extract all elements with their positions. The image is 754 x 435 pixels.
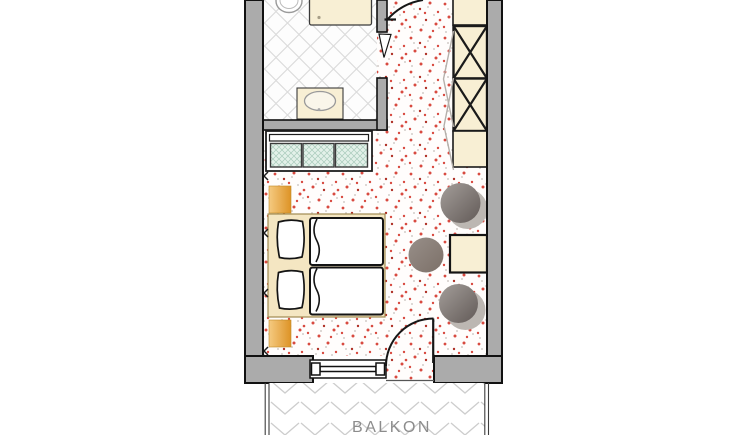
pillow [277, 220, 304, 259]
window-post [312, 363, 321, 375]
glass-sideboard [266, 131, 372, 171]
window-glazing [320, 367, 376, 372]
balcony: BALKON [265, 383, 488, 435]
shower-drain-icon [317, 16, 320, 19]
nightstand [269, 186, 291, 213]
sink-icon [305, 92, 336, 111]
pillow [277, 271, 304, 310]
shower-tray [310, 0, 372, 25]
glass-panel [271, 144, 302, 168]
bathroom-right-wall-lower [377, 78, 387, 130]
glass-panel [336, 144, 368, 168]
mattress-duvet [310, 268, 383, 315]
bathroom-bottom-wall [263, 120, 387, 130]
balcony-label: BALKON [352, 419, 432, 435]
chair [409, 238, 444, 273]
bottom-wall-right-block [434, 356, 502, 383]
window [310, 360, 386, 378]
window-post [376, 363, 385, 375]
chair [439, 284, 478, 323]
left-wall [245, 0, 263, 383]
sink-drain-icon [318, 108, 321, 111]
floorplan-canvas: BALKON [0, 0, 754, 435]
wardrobe-top-shelf [453, 0, 487, 25]
bottom-wall-left-block [245, 356, 313, 383]
mattress-duvet [310, 218, 383, 265]
side-table [450, 235, 487, 273]
right-wall [487, 0, 502, 383]
balcony-door-threshold-floor [386, 356, 434, 381]
bathroom-right-wall-upper [377, 0, 387, 32]
wardrobe-bottom-shelf [453, 131, 487, 167]
chair [441, 183, 481, 223]
sideboard-top-bar [270, 135, 369, 142]
floorplan: BALKON [0, 0, 754, 435]
nightstand [269, 320, 291, 347]
bathroom [263, 0, 377, 120]
glass-panel [303, 144, 334, 168]
